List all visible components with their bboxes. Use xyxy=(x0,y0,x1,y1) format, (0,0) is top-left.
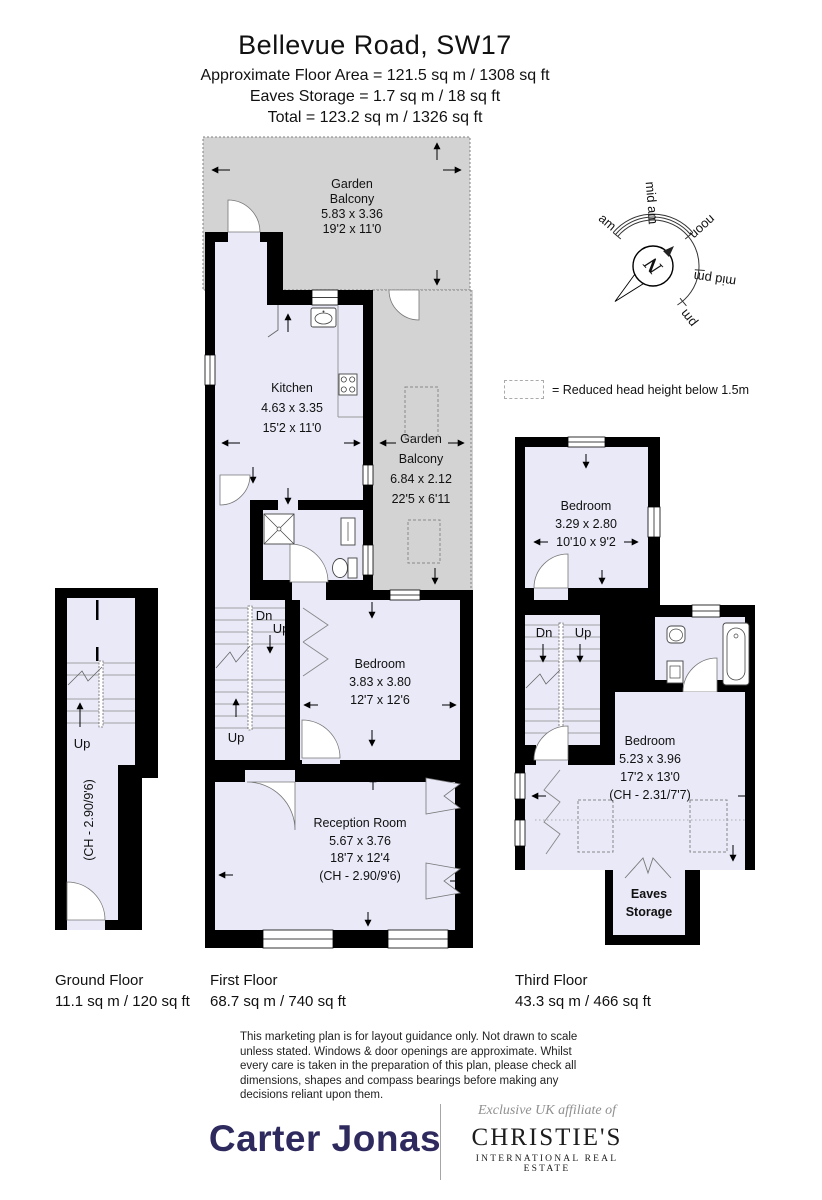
legend-text: = Reduced head height below 1.5m xyxy=(552,383,749,397)
room-label: Reception Room xyxy=(313,816,406,830)
room-label: 12'7 x 12'6 xyxy=(350,693,410,707)
disclaimer-text: This marketing plan is for layout guidan… xyxy=(240,1030,596,1103)
bathtub-icon xyxy=(723,623,749,685)
door-opening xyxy=(534,588,568,600)
floor-name: First Floor xyxy=(210,970,346,991)
floor-area: 43.3 sq m / 466 sq ft xyxy=(515,991,651,1012)
toilet-icon xyxy=(667,626,685,643)
room-label: Bedroom xyxy=(625,734,676,748)
room-label: Balcony xyxy=(330,192,375,206)
ground-floor-caption: Ground Floor 11.1 sq m / 120 sq ft xyxy=(55,970,190,1012)
window xyxy=(205,355,215,385)
window xyxy=(390,590,420,600)
page-title: Bellevue Road, SW17 xyxy=(40,30,710,61)
sink-icon xyxy=(311,308,336,327)
door-jamb xyxy=(96,647,99,661)
christies-wordmark: CHRISTIE'S xyxy=(452,1124,642,1152)
header: Bellevue Road, SW17 Approximate Floor Ar… xyxy=(40,30,710,128)
door-opening xyxy=(67,920,105,930)
sun-label-midam: mid am xyxy=(643,181,662,225)
first-floor-plan: Garden Balcony 5.83 x 3.36 19'2 x 11'0 G… xyxy=(200,130,510,970)
third-floor-caption: Third Floor 43.3 sq m / 466 sq ft xyxy=(515,970,651,1012)
room-label: 4.63 x 3.35 xyxy=(261,401,323,415)
stairs-down-label: Dn xyxy=(256,608,273,623)
door-jamb xyxy=(96,600,99,620)
floor-name: Ground Floor xyxy=(55,970,190,991)
stairs-up-label: Up xyxy=(575,625,592,640)
door-opening xyxy=(228,232,260,242)
approx-area-line: Approximate Floor Area = 121.5 sq m / 13… xyxy=(40,65,710,86)
total-line: Total = 123.2 sq m / 1326 sq ft xyxy=(40,107,710,128)
legend: = Reduced head height below 1.5m xyxy=(504,380,749,399)
room-label: 5.23 x 3.96 xyxy=(619,752,681,766)
toilet-icon xyxy=(333,558,358,578)
ceiling-height-label: (CH - 2.90/9'6) xyxy=(82,779,96,861)
interior-wall xyxy=(600,615,615,765)
floor-area: 68.7 sq m / 740 sq ft xyxy=(210,991,346,1012)
floor-name: Third Floor xyxy=(515,970,651,991)
room-label: Storage xyxy=(626,905,673,919)
floor-area: 11.1 sq m / 120 sq ft xyxy=(55,991,190,1012)
reduced-head-height-swatch xyxy=(504,380,544,399)
room-label: 6.84 x 2.12 xyxy=(390,472,452,486)
first-floor-caption: First Floor 68.7 sq m / 740 sq ft xyxy=(210,970,346,1012)
window xyxy=(363,545,373,575)
window xyxy=(363,465,373,485)
room-label: (CH - 2.31/7'7) xyxy=(609,788,691,802)
window xyxy=(312,290,338,305)
room-label: Bedroom xyxy=(561,499,612,513)
shower-icon xyxy=(264,514,294,544)
room-label: 15'2 x 11'0 xyxy=(263,421,322,435)
third-floor-plan: Bedroom 3.29 x 2.80 10'10 x 9'2 Dn Up xyxy=(510,430,760,970)
christies-subtitle: INTERNATIONAL REAL ESTATE xyxy=(452,1154,642,1174)
room-label: 3.83 x 3.80 xyxy=(349,675,411,689)
room-label: 17'2 x 13'0 xyxy=(620,770,680,784)
sun-label-pm: pm xyxy=(677,307,700,330)
window xyxy=(515,820,525,846)
stove-icon xyxy=(339,374,357,395)
hallway xyxy=(215,500,250,600)
floorplan-page: Bellevue Road, SW17 Approximate Floor Ar… xyxy=(0,0,822,1200)
room-label: Eaves xyxy=(631,887,667,901)
interior-wall xyxy=(285,600,300,750)
ground-floor-plan: Up (CH - 2.90/9'6) xyxy=(50,585,160,935)
sun-label-midpm: mid pm xyxy=(693,269,737,290)
room-label: Bedroom xyxy=(355,657,406,671)
room-label: Kitchen xyxy=(271,381,313,395)
window xyxy=(263,930,333,948)
room-label: 10'10 x 9'2 xyxy=(556,535,616,549)
room-label: 5.83 x 3.36 xyxy=(321,207,383,221)
window xyxy=(515,773,525,799)
window xyxy=(388,930,448,948)
stairs-down-label: Dn xyxy=(536,625,553,640)
interior-wall xyxy=(250,510,263,580)
room-label: 3.29 x 2.80 xyxy=(555,517,617,531)
footer-divider xyxy=(440,1104,441,1180)
interior-wall xyxy=(250,500,363,510)
stairs-up2-label: Up xyxy=(228,730,245,745)
christies-logo: Exclusive UK affiliate of CHRISTIE'S INT… xyxy=(452,1103,642,1174)
room-label: (CH - 2.90/9'6) xyxy=(319,869,401,883)
garden-balcony-side: Garden Balcony 6.84 x 2.12 22'5 x 6'11 xyxy=(373,290,473,598)
room-label: Balcony xyxy=(399,452,444,466)
room-label: 22'5 x 6'11 xyxy=(392,492,451,506)
compass-rose: N am mid am noon mid pm pm xyxy=(571,158,746,343)
basin-icon xyxy=(667,661,683,683)
room-label: Garden xyxy=(331,177,373,191)
room-label: Garden xyxy=(400,432,442,446)
eaves-line: Eaves Storage = 1.7 sq m / 18 sq ft xyxy=(40,86,710,107)
window xyxy=(692,605,720,617)
basin-icon xyxy=(341,518,355,545)
vestibule xyxy=(215,242,267,310)
room-label: 5.67 x 3.76 xyxy=(329,834,391,848)
affiliate-text: Exclusive UK affiliate of xyxy=(452,1103,642,1119)
door-opening xyxy=(292,580,326,600)
stairs-up-label: Up xyxy=(74,736,91,751)
window xyxy=(568,437,605,447)
sun-label-noon: noon xyxy=(687,212,719,242)
room-label: 18'7 x 12'4 xyxy=(330,851,390,865)
window xyxy=(648,507,660,537)
room-label: 19'2 x 11'0 xyxy=(323,222,382,236)
door-opening xyxy=(623,860,673,872)
eaves-storage-room xyxy=(613,870,685,935)
